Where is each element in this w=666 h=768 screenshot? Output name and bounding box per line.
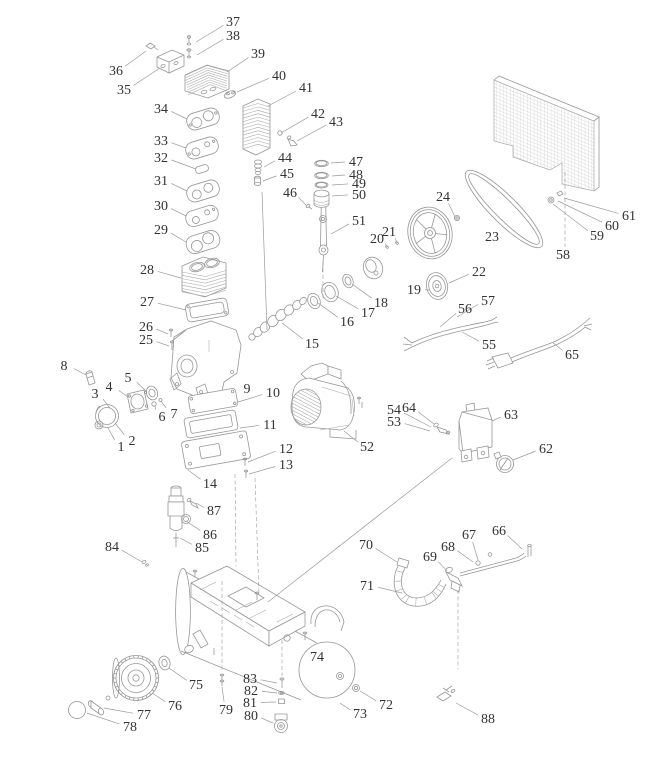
svg-text:88: 88 xyxy=(481,712,495,727)
svg-text:40: 40 xyxy=(272,69,286,84)
svg-text:6: 6 xyxy=(159,410,166,425)
svg-text:68: 68 xyxy=(441,540,455,555)
svg-text:60: 60 xyxy=(605,219,619,234)
svg-text:66: 66 xyxy=(492,524,506,539)
svg-text:39: 39 xyxy=(251,47,265,62)
svg-text:59: 59 xyxy=(590,229,604,244)
svg-text:69: 69 xyxy=(423,550,437,565)
svg-text:11: 11 xyxy=(263,418,276,433)
svg-text:8: 8 xyxy=(61,359,68,374)
svg-text:77: 77 xyxy=(137,708,151,723)
svg-text:14: 14 xyxy=(203,477,217,492)
svg-text:17: 17 xyxy=(361,306,375,321)
svg-text:54: 54 xyxy=(387,403,401,418)
svg-text:34: 34 xyxy=(154,102,168,117)
svg-text:74: 74 xyxy=(310,650,324,665)
svg-text:52: 52 xyxy=(360,440,374,455)
svg-text:19: 19 xyxy=(407,283,421,298)
svg-text:55: 55 xyxy=(482,338,496,353)
svg-text:38: 38 xyxy=(226,29,240,44)
svg-text:67: 67 xyxy=(462,528,476,543)
svg-text:44: 44 xyxy=(278,151,292,166)
svg-text:10: 10 xyxy=(266,386,280,401)
svg-text:62: 62 xyxy=(539,442,553,457)
svg-text:37: 37 xyxy=(226,15,240,30)
svg-text:75: 75 xyxy=(189,678,203,693)
svg-text:57: 57 xyxy=(481,294,495,309)
svg-text:16: 16 xyxy=(340,315,354,330)
svg-text:85: 85 xyxy=(195,541,209,556)
svg-text:18: 18 xyxy=(374,296,388,311)
svg-text:32: 32 xyxy=(154,151,168,166)
svg-text:15: 15 xyxy=(305,337,319,352)
svg-text:78: 78 xyxy=(123,720,137,735)
svg-text:64: 64 xyxy=(402,401,416,416)
svg-text:50: 50 xyxy=(352,188,366,203)
svg-text:35: 35 xyxy=(117,83,131,98)
svg-text:21: 21 xyxy=(382,225,396,240)
svg-text:42: 42 xyxy=(311,107,325,122)
svg-text:65: 65 xyxy=(565,348,579,363)
svg-text:36: 36 xyxy=(109,64,123,79)
svg-text:4: 4 xyxy=(106,380,113,395)
svg-text:73: 73 xyxy=(353,707,367,722)
svg-text:27: 27 xyxy=(140,295,154,310)
svg-text:9: 9 xyxy=(244,382,251,397)
svg-text:51: 51 xyxy=(352,214,366,229)
svg-text:23: 23 xyxy=(485,230,499,245)
svg-text:3: 3 xyxy=(92,387,99,402)
svg-text:31: 31 xyxy=(154,174,168,189)
svg-text:29: 29 xyxy=(154,223,168,238)
svg-text:25: 25 xyxy=(139,333,153,348)
svg-text:30: 30 xyxy=(154,199,168,214)
svg-text:1: 1 xyxy=(118,440,125,455)
svg-text:46: 46 xyxy=(283,186,297,201)
svg-text:56: 56 xyxy=(458,302,472,317)
svg-text:2: 2 xyxy=(129,434,136,449)
svg-text:63: 63 xyxy=(504,408,518,423)
svg-text:7: 7 xyxy=(171,407,178,422)
svg-text:45: 45 xyxy=(280,167,294,182)
svg-text:79: 79 xyxy=(219,703,233,718)
svg-text:58: 58 xyxy=(556,248,570,263)
svg-text:24: 24 xyxy=(436,190,450,205)
svg-text:5: 5 xyxy=(125,371,132,386)
svg-text:22: 22 xyxy=(472,265,486,280)
svg-text:41: 41 xyxy=(299,81,313,96)
svg-text:28: 28 xyxy=(140,263,154,278)
svg-text:87: 87 xyxy=(207,504,221,519)
svg-text:33: 33 xyxy=(154,134,168,149)
svg-text:43: 43 xyxy=(329,115,343,130)
svg-text:12: 12 xyxy=(279,442,293,457)
svg-text:76: 76 xyxy=(168,699,182,714)
svg-text:61: 61 xyxy=(622,209,636,224)
svg-text:71: 71 xyxy=(360,579,374,594)
svg-text:70: 70 xyxy=(359,538,373,553)
svg-text:80: 80 xyxy=(244,709,258,724)
svg-text:84: 84 xyxy=(105,540,119,555)
svg-text:13: 13 xyxy=(279,458,293,473)
svg-text:72: 72 xyxy=(379,698,393,713)
